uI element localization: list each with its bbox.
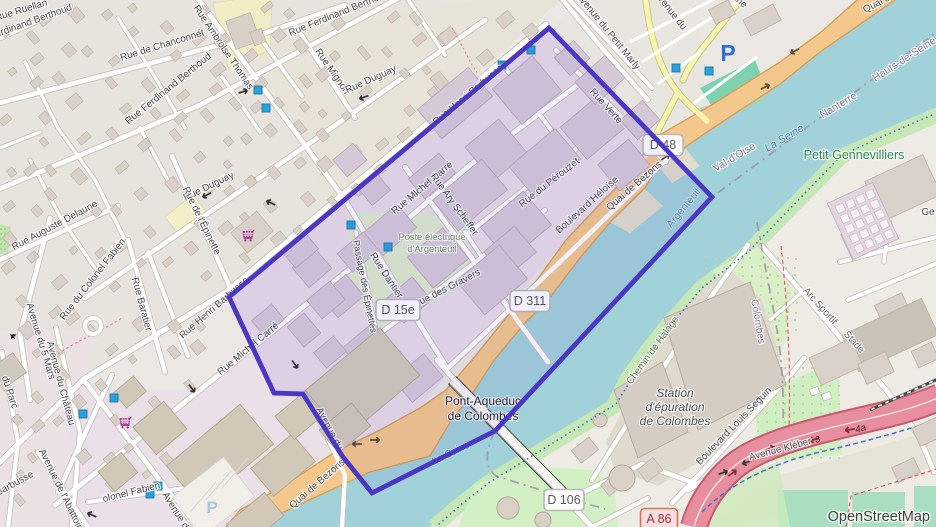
svg-text:P: P [720, 40, 735, 66]
svg-text:Petit Gennevilliers: Petit Gennevilliers [804, 148, 905, 162]
svg-text:d'épuration: d'épuration [645, 400, 704, 414]
svg-text:de Colombes: de Colombes [640, 414, 711, 428]
svg-text:A 86: A 86 [646, 512, 671, 526]
svg-text:D 106: D 106 [547, 493, 580, 507]
svg-text:Station: Station [656, 386, 694, 400]
svg-text:Ge: Ge [921, 207, 935, 218]
svg-text:P: P [206, 498, 217, 517]
svg-text:OpenStreetMap: OpenStreetMap [828, 509, 930, 525]
